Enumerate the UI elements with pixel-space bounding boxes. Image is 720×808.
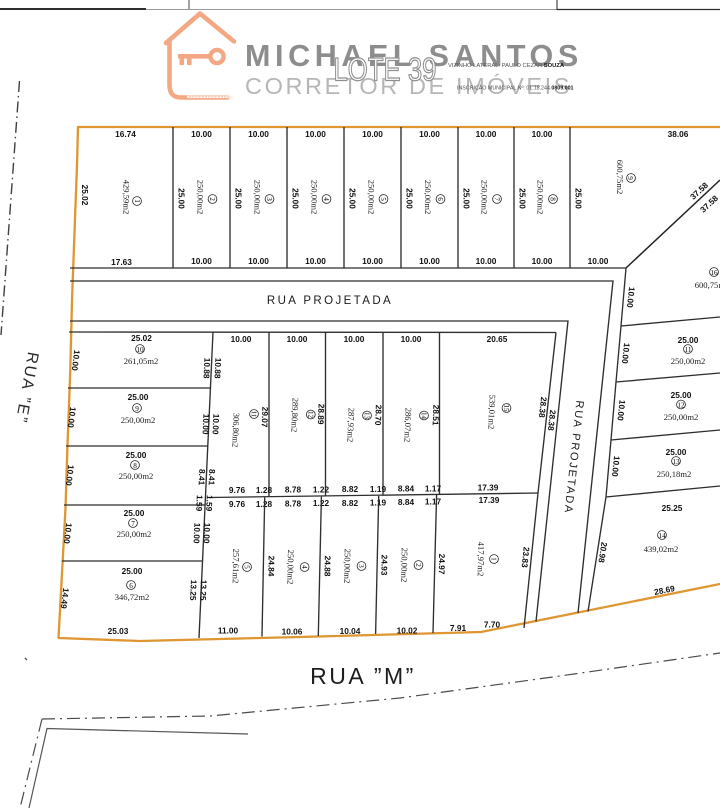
svg-text:8.41: 8.41	[197, 469, 208, 486]
svg-text:10.00: 10.00	[615, 399, 627, 421]
svg-text:10.00: 10.00	[201, 523, 212, 545]
svg-text:28.89: 28.89	[316, 404, 327, 425]
svg-text:10.00: 10.00	[248, 256, 269, 266]
svg-text:8.78: 8.78	[285, 485, 302, 495]
svg-text:10.00: 10.00	[248, 129, 269, 139]
svg-text:250,00m2: 250,00m2	[480, 180, 490, 215]
svg-text:25.00: 25.00	[348, 188, 358, 209]
svg-text:29.07: 29.07	[260, 407, 271, 428]
svg-text:28.38: 28.38	[537, 396, 549, 418]
svg-text:5: 5	[243, 565, 251, 569]
svg-text:6: 6	[436, 197, 444, 201]
svg-text:28.70: 28.70	[373, 405, 384, 426]
svg-text:10.00: 10.00	[532, 256, 553, 266]
svg-text:20.65: 20.65	[487, 334, 508, 344]
svg-text:250,00m2: 250,00m2	[117, 529, 152, 539]
svg-text:8.41: 8.41	[207, 469, 218, 486]
svg-text:1.17: 1.17	[425, 484, 442, 494]
svg-text:RUA PROJETADA: RUA PROJETADA	[267, 295, 393, 307]
svg-text:25.02: 25.02	[80, 185, 90, 206]
svg-text:25.00: 25.00	[122, 566, 143, 576]
svg-text:25.00: 25.00	[574, 188, 584, 209]
svg-text:8.84: 8.84	[398, 497, 415, 507]
svg-text:25.00: 25.00	[177, 188, 187, 209]
svg-text:13: 13	[363, 412, 371, 420]
svg-text:17.39: 17.39	[478, 483, 499, 493]
svg-text:38.06: 38.06	[668, 129, 689, 139]
svg-text:10.00: 10.00	[476, 129, 497, 139]
svg-text:250,00m2: 250,00m2	[671, 356, 706, 366]
svg-text:10.04: 10.04	[340, 626, 361, 636]
svg-text:3: 3	[265, 197, 273, 201]
svg-text:250,00m2: 250,00m2	[253, 180, 263, 215]
svg-text:3: 3	[357, 564, 365, 568]
svg-text:250,00m2: 250,00m2	[423, 180, 433, 215]
svg-text:RUA ”E”: RUA ”E”	[12, 351, 41, 426]
svg-text:9.76: 9.76	[229, 485, 246, 495]
svg-text:25.03: 25.03	[108, 626, 129, 636]
svg-text:11.00: 11.00	[218, 626, 239, 636]
svg-text:10.02: 10.02	[397, 626, 418, 636]
svg-text:13: 13	[672, 458, 680, 466]
svg-text:2: 2	[208, 197, 216, 201]
svg-text:250,00m2: 250,00m2	[664, 412, 699, 422]
svg-text:289,80m2: 289,80m2	[289, 398, 300, 433]
svg-text:10.00: 10.00	[191, 129, 212, 139]
svg-text:15: 15	[502, 404, 510, 412]
svg-text:RUA PROJETADA: RUA PROJETADA	[562, 400, 586, 515]
svg-text:25.00: 25.00	[128, 392, 149, 402]
svg-text:8: 8	[549, 197, 557, 201]
svg-text:9: 9	[135, 405, 139, 413]
svg-text:250,00m2: 250,00m2	[285, 550, 296, 585]
svg-text:1: 1	[133, 199, 141, 203]
svg-text:10.00: 10.00	[200, 414, 211, 436]
svg-text:10.00: 10.00	[625, 286, 637, 308]
svg-text:10.00: 10.00	[64, 464, 77, 486]
svg-text:25.02: 25.02	[131, 333, 152, 343]
svg-text:17.39: 17.39	[479, 495, 500, 505]
svg-text:17.63: 17.63	[111, 257, 132, 267]
svg-text:14: 14	[658, 532, 666, 540]
svg-text:25.00: 25.00	[234, 188, 244, 209]
svg-text:25.00: 25.00	[671, 390, 692, 400]
svg-text:1.28: 1.28	[256, 485, 273, 495]
svg-text:10.00: 10.00	[401, 334, 422, 344]
svg-text:11: 11	[685, 346, 692, 354]
svg-text:250,18m2: 250,18m2	[657, 469, 692, 479]
svg-text:10.00: 10.00	[610, 455, 622, 477]
svg-text:1.17: 1.17	[425, 497, 442, 507]
svg-text:7.70: 7.70	[484, 620, 501, 630]
svg-text:23.83: 23.83	[520, 546, 532, 568]
svg-text:257,61m2: 257,61m2	[231, 549, 242, 584]
svg-text:16.74: 16.74	[115, 129, 136, 139]
svg-text:10.00: 10.00	[191, 256, 212, 266]
svg-text:12: 12	[306, 411, 314, 419]
svg-text:250,00m2: 250,00m2	[536, 180, 546, 215]
svg-text:306,80m2: 306,80m2	[230, 413, 241, 448]
svg-text:10.00: 10.00	[419, 256, 440, 266]
svg-text:INSCRIÇÃO MUNICIPAL Nº: 01.18.: INSCRIÇÃO MUNICIPAL Nº: 01.18.244.0809.0…	[457, 85, 574, 92]
svg-text:28.51: 28.51	[431, 405, 442, 426]
svg-text:346,72m2: 346,72m2	[115, 592, 150, 602]
svg-text:250,00m2: 250,00m2	[367, 180, 377, 215]
svg-text:539,01m2: 539,01m2	[486, 395, 497, 430]
svg-text:4: 4	[322, 197, 330, 201]
svg-text:8: 8	[133, 462, 137, 470]
svg-text:11: 11	[250, 410, 258, 418]
svg-text:250,00m2: 250,00m2	[342, 549, 353, 584]
svg-text:10.00: 10.00	[231, 334, 252, 344]
svg-text:25.00: 25.00	[405, 188, 415, 209]
svg-text:10.00: 10.00	[362, 256, 383, 266]
svg-text:2: 2	[414, 563, 422, 567]
svg-text:7: 7	[493, 197, 501, 201]
svg-text:VIZINHO LATERAL: PAULO CEZAR S: VIZINHO LATERAL: PAULO CEZAR SOUZA	[448, 63, 565, 69]
svg-text:10.00: 10.00	[532, 129, 553, 139]
svg-text:10.00: 10.00	[210, 414, 221, 436]
svg-text:10.00: 10.00	[344, 334, 365, 344]
svg-text:LOTE 39: LOTE 39	[334, 52, 437, 88]
svg-text:25.00: 25.00	[678, 335, 699, 345]
svg-text:1.59: 1.59	[194, 495, 205, 512]
svg-text:16: 16	[710, 269, 718, 277]
svg-text:439,02m2: 439,02m2	[644, 544, 679, 554]
svg-text:8.82: 8.82	[342, 484, 359, 494]
svg-text:37.58: 37.58	[698, 193, 720, 215]
svg-text:8.84: 8.84	[398, 484, 415, 494]
svg-text:6: 6	[129, 582, 133, 590]
svg-text:9: 9	[626, 176, 634, 180]
svg-text:12: 12	[677, 401, 685, 409]
svg-text:7.91: 7.91	[450, 623, 467, 633]
svg-text:10.00: 10.00	[305, 129, 326, 139]
svg-text:10.06: 10.06	[282, 627, 303, 637]
svg-text:287,93m2: 287,93m2	[345, 408, 356, 443]
svg-text:10.00: 10.00	[305, 256, 326, 266]
svg-text:5: 5	[379, 197, 387, 201]
svg-text:250,00m2: 250,00m2	[121, 415, 156, 425]
svg-text:14: 14	[420, 412, 428, 420]
svg-text:25.00: 25.00	[518, 188, 528, 209]
svg-text:1.22: 1.22	[313, 485, 330, 495]
svg-text:286,07m2: 286,07m2	[402, 408, 413, 443]
svg-text:10.00: 10.00	[419, 129, 440, 139]
svg-text:8.78: 8.78	[285, 499, 302, 509]
svg-text:600,75m2: 600,75m2	[695, 280, 720, 290]
svg-text:250,00m2: 250,00m2	[196, 180, 206, 215]
svg-text:24.97: 24.97	[437, 554, 447, 575]
svg-text:13.25: 13.25	[198, 580, 209, 602]
svg-text:25.00: 25.00	[124, 508, 145, 518]
svg-text:250,00m2: 250,00m2	[399, 548, 410, 583]
svg-text:25.00: 25.00	[462, 188, 472, 209]
svg-text:24.93: 24.93	[379, 555, 389, 576]
svg-text:1.19: 1.19	[370, 484, 387, 494]
svg-text:7: 7	[131, 520, 135, 528]
svg-text:10.00: 10.00	[588, 256, 609, 266]
svg-text:13.25: 13.25	[188, 580, 199, 602]
svg-text:25.00: 25.00	[126, 450, 147, 460]
svg-text:250,00m2: 250,00m2	[310, 180, 320, 215]
svg-text:4: 4	[300, 565, 308, 569]
svg-text:10.00: 10.00	[287, 334, 308, 344]
svg-text:24.84: 24.84	[266, 556, 276, 577]
svg-text:9.76: 9.76	[229, 499, 246, 509]
svg-text:10.88: 10.88	[212, 358, 223, 380]
svg-text:10.88: 10.88	[201, 358, 212, 380]
svg-text:417,97m2: 417,97m2	[476, 542, 487, 577]
svg-text:10: 10	[136, 346, 144, 354]
svg-text:RUA ”M”: RUA ”M”	[310, 663, 416, 689]
svg-text:429,59m2: 429,59m2	[122, 180, 132, 215]
svg-text:1: 1	[490, 557, 498, 561]
svg-text:250,00m2: 250,00m2	[119, 471, 154, 481]
svg-text:10.00: 10.00	[362, 129, 383, 139]
svg-text:10.00: 10.00	[476, 256, 497, 266]
svg-text:28.69: 28.69	[653, 583, 676, 597]
svg-text:10.00: 10.00	[191, 523, 202, 545]
svg-text:24.88: 24.88	[323, 556, 333, 577]
svg-text:10.00: 10.00	[620, 342, 632, 364]
svg-text:10.00: 10.00	[66, 406, 79, 428]
svg-text:261,05m2: 261,05m2	[124, 356, 159, 366]
svg-text:1.59: 1.59	[204, 495, 215, 512]
svg-text:25.25: 25.25	[662, 503, 683, 513]
svg-text:8.82: 8.82	[342, 498, 359, 508]
svg-text:25.00: 25.00	[666, 447, 687, 457]
svg-text:600,75m2: 600,75m2	[615, 160, 625, 195]
svg-text:25.00: 25.00	[291, 188, 301, 209]
